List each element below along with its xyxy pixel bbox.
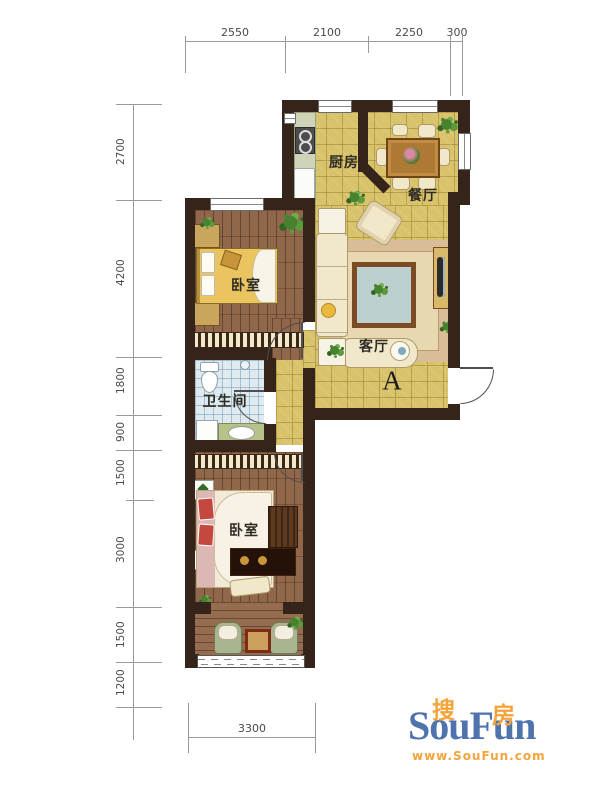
wall-living-bottom [310,408,460,420]
dim-tick [188,703,189,753]
logo-url-text: www.SouFun.com [412,749,546,763]
vanity-sink [228,426,255,440]
dining-window-top [392,100,438,113]
shower-head [240,360,250,370]
wall-left-exterior [185,198,195,668]
fruit-bowl [321,303,336,318]
rug-bowl [258,556,267,565]
dim-tick [450,36,451,96]
wall-living-right-upper [448,205,460,368]
wall-strip-right-upper [303,198,315,322]
dim-tick [116,607,162,608]
pillow-red [197,523,214,546]
room-label-bedroom-top: 卧室 [231,275,261,295]
dim-tick [116,104,162,105]
dim-line [188,737,316,738]
dim-label: 3000 [113,528,129,572]
wall-step-corner [448,192,470,205]
dim-tick [116,357,162,358]
floorplan-image: 2550 2100 2250 300 2700 4200 1800 900 15… [0,0,600,800]
entry-door-arc [460,369,494,404]
dining-chair [392,124,408,136]
kitchen-sink-unit [294,168,315,200]
plant [203,219,211,227]
room-label-kitchen: 厨房 [329,152,359,172]
wall-bedroom-top-south [185,348,272,360]
dim-label: 1500 [113,613,129,657]
armchair-cushion [274,625,294,640]
dim-tick [116,200,162,201]
washing-machine [196,420,218,441]
sofa [316,233,348,337]
dining-chair [418,124,436,138]
dim-label: 1800 [113,359,129,403]
plant [290,618,299,627]
logo-cn-fang: 房 [492,696,515,730]
dim-tick [126,500,154,501]
wall-bathroom-south [185,440,272,452]
logo-cn-sou: 搜 [432,691,455,725]
pillow [201,252,215,273]
wall-top [282,100,470,112]
room-label-bathroom: 卫生间 [203,391,248,411]
dim-tick [462,36,463,96]
wall-balcony-stub-left [185,602,211,614]
nightstand [194,302,220,326]
armchair-cushion [218,625,238,640]
dim-label: 2100 [313,26,341,39]
dim-label: 1500 [113,451,129,495]
room-label-living: 客厅 [359,336,389,356]
kitchen-window [318,100,352,113]
pillow [201,275,215,296]
table-centerpiece-flowers [403,147,420,164]
dim-tick [285,36,286,73]
dim-tick [116,707,162,708]
kitchen-vent [284,113,296,124]
dim-line [185,41,463,42]
logo-brand-text: SouFun [408,702,535,749]
plant [350,193,360,203]
rug-bowl [240,556,249,565]
dim-label: 4200 [113,251,129,295]
stove-burner [299,141,312,154]
room-label-dining: 餐厅 [408,185,438,205]
dim-label: 300 [447,26,468,39]
dim-label: 1200 [113,661,129,705]
dim-tick [368,36,369,53]
zone-label-a: A [382,366,402,397]
dim-label: 3300 [238,722,266,735]
nightstand [194,224,220,248]
dim-label: 2700 [113,130,129,174]
wall-balcony-stub-right [283,602,315,614]
blue-accent [398,347,406,355]
plant [330,346,339,355]
pillow-red [197,497,215,520]
coffee-table-plant [374,285,383,294]
room-label-bedroom-bottom: 卧室 [229,520,259,540]
bedroom-top-window [210,198,264,211]
wardrobe [268,506,298,548]
wall-bathroom-right-upper [264,358,276,392]
wall-strip-right-lower [303,368,315,668]
balcony-window [197,655,305,668]
dim-label: 2250 [395,26,423,39]
coffee-table [352,262,416,328]
dim-label: 2550 [221,26,249,39]
dim-tick [185,36,186,73]
plant [284,216,298,230]
dining-chair-shape [392,124,408,136]
dim-label: 900 [113,410,129,454]
dim-tick [315,703,316,753]
plant [441,119,452,130]
balcony-table [245,629,271,653]
side-table-top [318,208,346,234]
dining-window-right [458,133,471,170]
tv [437,257,445,297]
